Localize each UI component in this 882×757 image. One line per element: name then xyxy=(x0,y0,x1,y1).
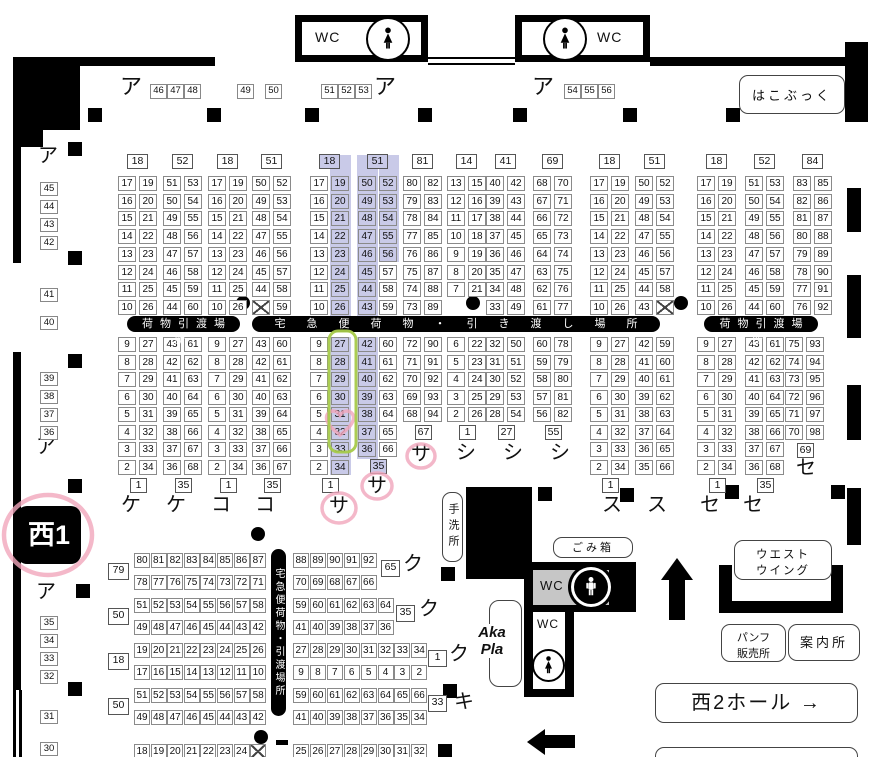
row-label-kana: コ xyxy=(208,495,234,515)
booth-cell: 29 xyxy=(327,643,343,658)
booth-cell: 14 xyxy=(310,229,328,244)
booth-cell: 28 xyxy=(486,407,504,422)
booth-cell: 20 xyxy=(151,643,167,658)
booth-cell: 20 xyxy=(331,194,349,209)
booth-cell: 80 xyxy=(403,176,421,191)
booth-cell: 55 xyxy=(200,598,216,613)
booth-cell: 78 xyxy=(793,265,811,280)
booth-cell: 55 xyxy=(184,211,202,226)
band-header: 50 xyxy=(108,608,129,625)
booth-cell: 47 xyxy=(163,247,181,262)
booth-cell: 49 xyxy=(358,194,376,209)
wc-label: WC xyxy=(597,29,622,45)
band-header: 35 xyxy=(396,605,415,622)
up-arrow-icon xyxy=(661,558,693,580)
partial-label-box xyxy=(655,747,858,757)
booth-cell: 60 xyxy=(310,598,326,613)
row-a-label: ア xyxy=(532,76,554,98)
booth-cell: 65 xyxy=(273,425,291,440)
booth-cell: 32 xyxy=(378,643,394,658)
block-footer: 69 xyxy=(797,443,814,458)
booth-cell: 27 xyxy=(293,643,309,658)
wc-room-women-wall xyxy=(524,689,574,697)
left-number: 31 xyxy=(40,710,58,724)
booth-cell: 23 xyxy=(217,744,233,757)
booth-cell: 38 xyxy=(344,620,360,635)
band-header: 1 xyxy=(428,650,447,667)
block-footer: 1 xyxy=(322,478,339,493)
booth-cell: 30 xyxy=(331,390,349,405)
booth-cell: 57 xyxy=(656,265,674,280)
pillar xyxy=(68,142,82,156)
booth-cell: 55 xyxy=(656,229,674,244)
booth-cell: 43 xyxy=(635,300,653,315)
top-number: 55 xyxy=(581,84,598,99)
booth-cell: 66 xyxy=(361,575,377,590)
booth-cell: 22 xyxy=(200,744,216,757)
booth-cell: 64 xyxy=(273,407,291,422)
booth-cell: 7 xyxy=(118,372,136,387)
booth-cell: 68 xyxy=(184,460,202,475)
booth-cell: 60 xyxy=(310,688,326,703)
booth-cell: 60 xyxy=(184,300,202,315)
booth-cell: 60 xyxy=(766,300,784,315)
booth-cell: 5 xyxy=(310,407,328,422)
booth-cell: 12 xyxy=(697,265,715,280)
block-footer: 1 xyxy=(602,478,619,493)
booth-cell: 59 xyxy=(293,598,309,613)
block-header: 18 xyxy=(599,154,620,169)
booth-cell: 27 xyxy=(611,337,629,352)
booth-cell: 23 xyxy=(611,247,629,262)
booth-cell: 55 xyxy=(273,229,291,244)
booth-cell: 21 xyxy=(611,211,629,226)
booth-cell: 40 xyxy=(486,176,504,191)
booth-cell: 2 xyxy=(310,460,328,475)
booth-cell: 49 xyxy=(134,620,150,635)
booth-cell: 46 xyxy=(252,247,270,262)
booth-cell: 31 xyxy=(229,407,247,422)
booth-cell: 53 xyxy=(379,194,397,209)
booth-cell: 16 xyxy=(118,194,136,209)
block-header: 84 xyxy=(802,154,823,169)
pillar xyxy=(725,485,739,499)
row-a-label: ア xyxy=(36,582,56,602)
booth-cell: 11 xyxy=(590,282,608,297)
booth-cell: 11 xyxy=(208,282,226,297)
booth-cell: 4 xyxy=(118,425,136,440)
booth-cell: 30 xyxy=(611,390,629,405)
booth-cell: 17 xyxy=(134,665,150,680)
left-number: 37 xyxy=(40,408,58,422)
band-header: 18 xyxy=(108,653,129,670)
booth-cell: 44 xyxy=(217,620,233,635)
booth-cell: 76 xyxy=(554,282,572,297)
booth-cell: 54 xyxy=(507,407,525,422)
booth-cell: 49 xyxy=(134,710,150,725)
wc-label: WC xyxy=(537,617,559,631)
booth-cell: 17 xyxy=(310,176,328,191)
booth-cell: 16 xyxy=(468,194,486,209)
booth-cell: 10 xyxy=(447,229,465,244)
booth-cell: 67 xyxy=(273,460,291,475)
booth-cell: 36 xyxy=(163,460,181,475)
booth-cell: 40 xyxy=(310,710,326,725)
booth-cell: 66 xyxy=(766,425,784,440)
booth-cell: 61 xyxy=(533,300,551,315)
booth-cell: 56 xyxy=(217,688,233,703)
booth-cell: 62 xyxy=(273,372,291,387)
booth-cell: 71 xyxy=(250,575,266,590)
booth-cell: 22 xyxy=(184,643,200,658)
booth-cell: 86 xyxy=(424,247,442,262)
booth-cell: 29 xyxy=(718,372,736,387)
booth-cell: 58 xyxy=(656,282,674,297)
booth-cell: 80 xyxy=(793,229,811,244)
booth-cell: 85 xyxy=(814,176,832,191)
booth-cell: 14 xyxy=(697,229,715,244)
booth-cell: 70 xyxy=(554,176,572,191)
booth-cell: 39 xyxy=(327,710,343,725)
booth-cell: 56 xyxy=(656,247,674,262)
booth-cell: 66 xyxy=(184,425,202,440)
booth-cell: 24 xyxy=(139,265,157,280)
booth-cell: 72 xyxy=(234,575,250,590)
booth-cell: 29 xyxy=(611,372,629,387)
booth-cell: 53 xyxy=(507,390,525,405)
booth-cell: 34 xyxy=(331,460,349,475)
booth-cell: 49 xyxy=(507,300,525,315)
wall-corner-tr xyxy=(845,42,868,122)
booth-cell: 59 xyxy=(273,300,291,315)
booth-cell: 21 xyxy=(718,211,736,226)
booth-cell: 23 xyxy=(229,247,247,262)
block-footer: 1 xyxy=(459,425,476,440)
booth-cell: 22 xyxy=(718,229,736,244)
booth-cell: 27 xyxy=(139,337,157,352)
top-number: 53 xyxy=(355,84,372,99)
booth-cell: 8 xyxy=(310,665,326,680)
booth-cell: 86 xyxy=(814,194,832,209)
booth-cell: 46 xyxy=(184,620,200,635)
booth-cell: 48 xyxy=(635,211,653,226)
booth-cell: 16 xyxy=(208,194,226,209)
row-label-kana: ク xyxy=(400,554,426,574)
female-icon xyxy=(366,17,410,61)
booth-cell: 41 xyxy=(163,372,181,387)
booth-cell: 54 xyxy=(766,194,784,209)
booth-cell: 63 xyxy=(379,390,397,405)
booth-cell: 82 xyxy=(167,553,183,568)
booth-cell: 45 xyxy=(252,265,270,280)
booth-cell: 8 xyxy=(208,355,226,370)
booth-cell: 44 xyxy=(507,211,525,226)
booth-cell: 62 xyxy=(533,282,551,297)
booth-cell: 38 xyxy=(745,425,763,440)
left-number: 34 xyxy=(40,634,58,648)
booth-cell: 30 xyxy=(718,390,736,405)
booth-cell: 51 xyxy=(507,355,525,370)
hakobook-box: はこぶっく xyxy=(739,75,845,114)
booth-cell: 66 xyxy=(411,688,427,703)
booth-cell: 44 xyxy=(217,710,233,725)
booth-cell: 12 xyxy=(208,265,226,280)
booth-cell: 52 xyxy=(151,598,167,613)
booth-cell: 35 xyxy=(394,710,410,725)
booth-cell: 29 xyxy=(361,744,377,757)
booth-cell: 57 xyxy=(234,688,250,703)
booth-cell: 15 xyxy=(118,211,136,226)
booth-cell: 8 xyxy=(447,265,465,280)
booth-cell: 37 xyxy=(358,425,376,440)
booth-cell: 4 xyxy=(447,372,465,387)
booth-cell: 27 xyxy=(229,337,247,352)
booth-cell: 24 xyxy=(234,744,250,757)
booth-cell: 82 xyxy=(424,176,442,191)
booth-cell: 6 xyxy=(697,390,715,405)
booth-cell: 65 xyxy=(766,407,784,422)
booth-cell: 57 xyxy=(533,390,551,405)
booth-cell: 81 xyxy=(554,390,572,405)
left-number: 43 xyxy=(40,218,58,232)
booth-cell: 25 xyxy=(293,744,309,757)
booth-cell: 67 xyxy=(184,442,202,457)
left-number: 40 xyxy=(40,316,58,330)
booth-cell: 62 xyxy=(656,390,674,405)
booth-cell: 5 xyxy=(208,407,226,422)
booth-cell: 26 xyxy=(250,643,266,658)
booth-cell: 26 xyxy=(229,300,247,315)
booth-cell: 13 xyxy=(590,247,608,262)
booth-cell: 79 xyxy=(793,247,811,262)
booth-cell: 48 xyxy=(151,710,167,725)
booth-cell: 42 xyxy=(252,355,270,370)
booth-cell: 60 xyxy=(656,355,674,370)
booth-cell: 62 xyxy=(766,355,784,370)
booth-cell: 4 xyxy=(697,425,715,440)
pillar xyxy=(538,487,552,501)
hall-badge: 西1 xyxy=(17,506,81,564)
booth-cell: 61 xyxy=(379,355,397,370)
booth-cell: 40 xyxy=(310,620,326,635)
booth-cell: 10 xyxy=(697,300,715,315)
booth-cell: 7 xyxy=(327,665,343,680)
booth-cell: 20 xyxy=(229,194,247,209)
booth-cell: 7 xyxy=(590,372,608,387)
wc-room-women-wall xyxy=(524,612,533,697)
block-header: 14 xyxy=(456,154,477,169)
booth-cell: 8 xyxy=(590,355,608,370)
booth-cell: 67 xyxy=(344,575,360,590)
booth-cell: 77 xyxy=(793,282,811,297)
block-header: 52 xyxy=(172,154,193,169)
booth-cell: 61 xyxy=(273,355,291,370)
pillar-dot xyxy=(254,730,268,744)
booth-cell: 77 xyxy=(403,229,421,244)
booth-cell: 32 xyxy=(718,425,736,440)
booth-cell: 25 xyxy=(229,282,247,297)
booth-cell: 8 xyxy=(697,355,715,370)
booth-cell: 15 xyxy=(167,665,183,680)
booth-cell: 63 xyxy=(656,407,674,422)
booth-cell: 47 xyxy=(507,265,525,280)
booth-cell: 37 xyxy=(745,442,763,457)
booth-cell: 55 xyxy=(766,211,784,226)
floor-map: WC WC ア ア ア はこぶっく ア ア ア 西1 荷物引渡場所 宅急便荷物・… xyxy=(0,0,882,757)
booth-cell: 52 xyxy=(379,176,397,191)
booth-cell: 7 xyxy=(697,372,715,387)
booth-cell: 19 xyxy=(151,744,167,757)
booth-cell: 74 xyxy=(200,575,216,590)
booth-cell: 50 xyxy=(163,194,181,209)
booth-cell: 24 xyxy=(217,643,233,658)
row-label-kana: サ xyxy=(364,476,390,496)
bar-luggage-left: 荷物引渡場所 xyxy=(127,316,240,332)
booth-cell: 32 xyxy=(611,425,629,440)
booth-cell: 19 xyxy=(229,176,247,191)
booth-cell: 63 xyxy=(766,372,784,387)
booth-cell: 45 xyxy=(635,265,653,280)
block-footer: 27 xyxy=(498,425,515,440)
booth-cell: 16 xyxy=(310,194,328,209)
booth-cell: 2 xyxy=(208,460,226,475)
booth-cell: 57 xyxy=(273,265,291,280)
booth-cell: 19 xyxy=(139,176,157,191)
booth-cell: 84 xyxy=(424,211,442,226)
booth-cell: 82 xyxy=(554,407,572,422)
booth-cell: 44 xyxy=(163,300,181,315)
booth-cell: 15 xyxy=(697,211,715,226)
booth-cell: 38 xyxy=(635,407,653,422)
wall-left-upper xyxy=(13,66,21,263)
booth-cell: 17 xyxy=(208,176,226,191)
booth-cell: 47 xyxy=(635,229,653,244)
booth-cell: 5 xyxy=(590,407,608,422)
booth-cell: 25 xyxy=(139,282,157,297)
booth-cell: 16 xyxy=(590,194,608,209)
booth-cell: 72 xyxy=(785,390,803,405)
booth-cell: 8 xyxy=(118,355,136,370)
booth-cell: 49 xyxy=(635,194,653,209)
booth-cell: 26 xyxy=(611,300,629,315)
booth-cell: 46 xyxy=(635,247,653,262)
booth-cell: 88 xyxy=(814,229,832,244)
booth-cell: 62 xyxy=(344,688,360,703)
booth-cell: 47 xyxy=(252,229,270,244)
booth-cell: 26 xyxy=(331,300,349,315)
booth-cell: 3 xyxy=(394,665,410,680)
booth-cell: 21 xyxy=(139,211,157,226)
booth-cell: 93 xyxy=(424,390,442,405)
booth-cell: 64 xyxy=(184,390,202,405)
booth-cell: 19 xyxy=(718,176,736,191)
pamphlet-line1: パンフ xyxy=(722,629,785,645)
booth-cell: 31 xyxy=(611,407,629,422)
booth-cell: 59 xyxy=(379,300,397,315)
booth-cell: 64 xyxy=(656,425,674,440)
booth-cell: 48 xyxy=(507,282,525,297)
booth-cell: 10 xyxy=(208,300,226,315)
booth-cell: 25 xyxy=(611,282,629,297)
booth-cell: 75 xyxy=(554,265,572,280)
top-number: 51 xyxy=(321,84,338,99)
pillar xyxy=(623,108,637,122)
booth-cell: 77 xyxy=(151,575,167,590)
booth-cell: 86 xyxy=(234,553,250,568)
booth-cell: 72 xyxy=(554,211,572,226)
booth-cell: 34 xyxy=(486,282,504,297)
booth-cell: 66 xyxy=(273,442,291,457)
booth-cell: 91 xyxy=(814,282,832,297)
row-label-kana: セ xyxy=(697,495,723,515)
booth-cell: 94 xyxy=(424,407,442,422)
booth-cell: 49 xyxy=(252,194,270,209)
booth-cell: 19 xyxy=(468,247,486,262)
booth-cell: 13 xyxy=(447,176,465,191)
booth-cell: 78 xyxy=(403,211,421,226)
nishi2-hall-box: 西2ホール → xyxy=(655,683,858,723)
booth-cell: 44 xyxy=(358,282,376,297)
wc-label: WC xyxy=(315,29,340,45)
booth-cell: 35 xyxy=(635,460,653,475)
booth-cell: 41 xyxy=(293,710,309,725)
booth-cell: 28 xyxy=(229,355,247,370)
booth-cell: 36 xyxy=(358,442,376,457)
booth-cell: 62 xyxy=(379,372,397,387)
booth-cell: 46 xyxy=(745,265,763,280)
booth-cell: 20 xyxy=(611,194,629,209)
booth-cell: 47 xyxy=(358,229,376,244)
booth-cell: 76 xyxy=(403,247,421,262)
booth-cell: 59 xyxy=(766,282,784,297)
booth-cell: 53 xyxy=(184,176,202,191)
booth-cell: 81 xyxy=(151,553,167,568)
booth-cell: 6 xyxy=(310,390,328,405)
booth-cell: 75 xyxy=(403,265,421,280)
top-number: 46 xyxy=(150,84,167,99)
wall-right-seg xyxy=(847,275,861,338)
booth-cell: 87 xyxy=(814,211,832,226)
band-header: 33 xyxy=(428,695,447,712)
top-number: 54 xyxy=(564,84,581,99)
booth-cell: 83 xyxy=(184,553,200,568)
booth-cell: 34 xyxy=(139,460,157,475)
booth-cell: 28 xyxy=(139,355,157,370)
booth-cell: 63 xyxy=(361,598,377,613)
pillar xyxy=(68,354,82,368)
booth-cell: 53 xyxy=(167,598,183,613)
booth-cell: 26 xyxy=(718,300,736,315)
booth-cell: 59 xyxy=(656,337,674,352)
booth-cell: 73 xyxy=(554,229,572,244)
booth-cell: 71 xyxy=(403,355,421,370)
booth-cell: 9 xyxy=(310,337,328,352)
booth-cell: 43 xyxy=(234,620,250,635)
booth-cell: 6 xyxy=(447,337,465,352)
booth-cell: 21 xyxy=(331,211,349,226)
booth-cell: 9 xyxy=(208,337,226,352)
booth-cell: 41 xyxy=(293,620,309,635)
block-footer: 35 xyxy=(370,459,387,474)
booth-cell: 50 xyxy=(358,176,376,191)
booth-cell: 39 xyxy=(163,407,181,422)
booth-cell: 57 xyxy=(379,265,397,280)
row-label-kana: ス xyxy=(644,495,670,515)
booth-cell: 6 xyxy=(118,390,136,405)
booth-cell: 14 xyxy=(590,229,608,244)
booth-cell: 21 xyxy=(184,744,200,757)
pillar xyxy=(68,479,82,493)
